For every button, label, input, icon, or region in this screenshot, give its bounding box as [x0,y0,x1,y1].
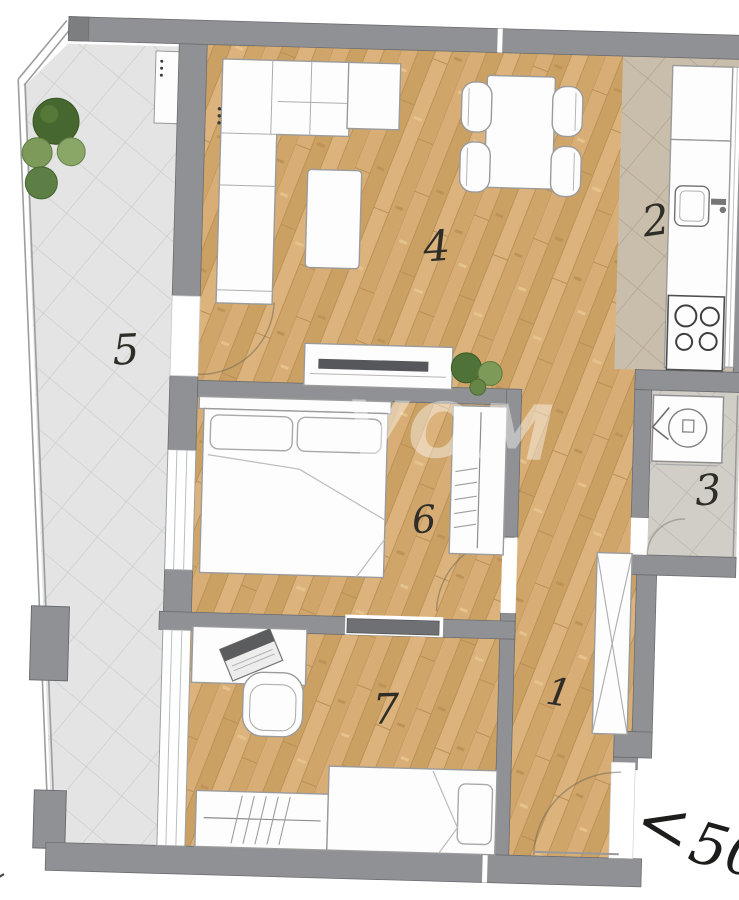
fridge-unit [671,65,733,141]
cooktop-icon [666,295,724,371]
terrace-railing-post [29,606,69,681]
pillow [210,415,293,451]
terrace-railing-post [33,790,67,849]
floor-plan-drawing: 1 2 3 4 5 6 7 < 50 VOM [0,0,739,900]
kidsroom-door-leaf [347,619,439,636]
office-chair [242,672,304,738]
room-label-living: 4 [420,221,451,272]
bathroom-left-wall [631,390,652,518]
watermark: VOM [344,383,559,478]
single-bed [327,766,497,855]
chair [461,82,492,133]
washing-machine-icon [652,395,724,466]
terrace-door-opening [170,296,200,377]
stray-mark [0,874,4,882]
room-label-bedroom: 6 [411,497,438,542]
terrace [0,19,181,851]
bathroom-bottom-wall [630,554,737,577]
stairwell-wall-jog [614,731,653,758]
room-label-terrace: 5 [112,325,141,375]
kidsroom-wardrobe [195,790,329,850]
top-wall-cap [68,17,89,42]
left-wall-mid1 [168,376,198,451]
bedroom-window [165,450,196,571]
side-cabinet [347,62,401,129]
top-wall-seam [497,29,503,53]
kitchen [664,65,732,371]
coffee-table [305,169,362,268]
kitchen-bath-wall [635,370,739,393]
hallway-closet [592,553,632,735]
room-label-bathroom: 3 [693,465,723,516]
left-wall-mid2 [163,569,192,614]
stairwell-left-wall [632,575,656,735]
chair [550,146,581,197]
room-label-kidsroom: 7 [372,684,400,734]
dining-table [484,75,555,189]
dimension-annotation: < 50 [629,783,739,893]
bathroom-door-opening [630,517,648,554]
chair [459,142,490,193]
hallway [592,553,632,735]
bottom-wall-seam [482,854,488,882]
bathroom [652,395,724,466]
kidsroom-window [157,629,191,846]
floor-plan: 1 2 3 4 5 6 7 < 50 VOM [0,0,739,900]
pillow [457,784,493,845]
chair [552,86,583,137]
terrace-cabinet [154,51,180,124]
